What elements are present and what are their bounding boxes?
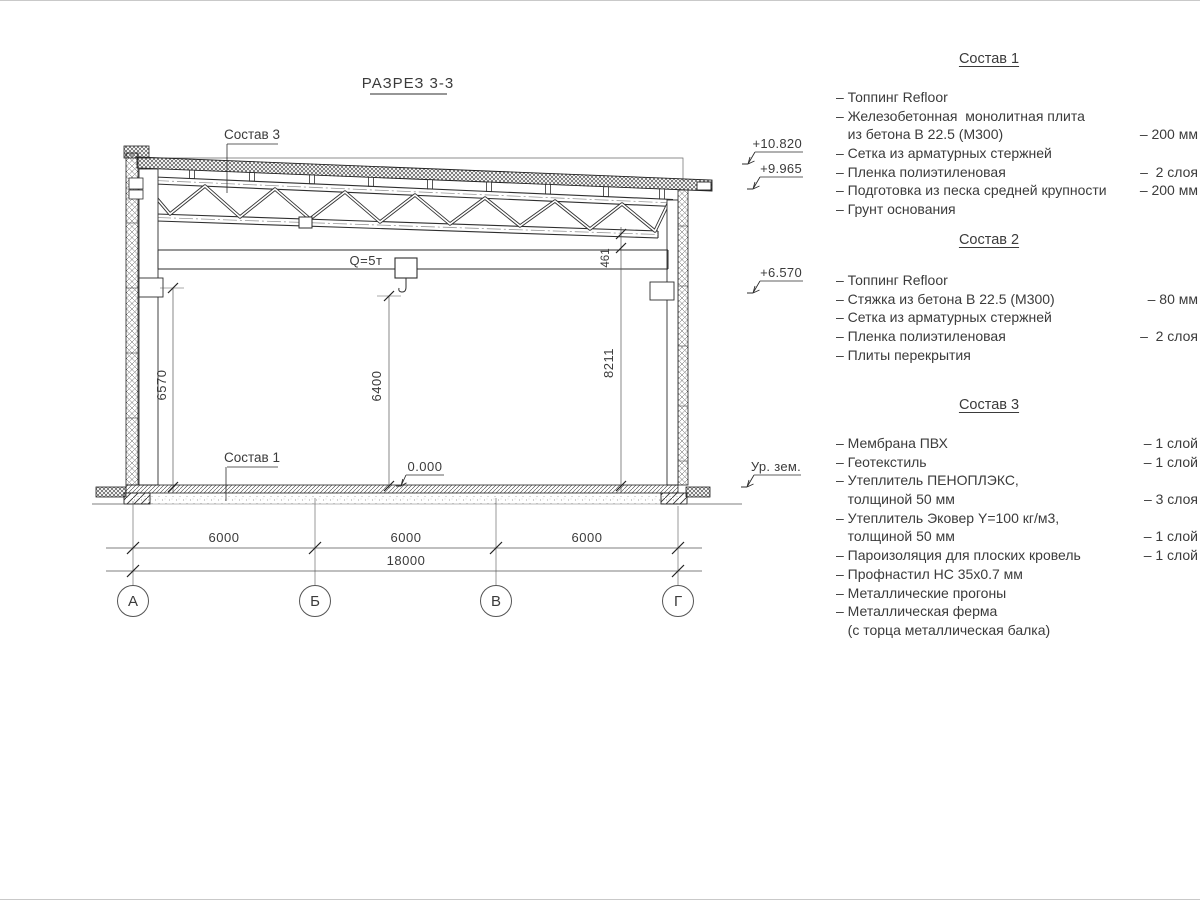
svg-text:+6.570: +6.570 bbox=[760, 265, 802, 280]
elevation-mark-roof-low: +9.965 bbox=[747, 161, 803, 189]
elevation-mark-ground: Ур. зем. bbox=[741, 459, 801, 487]
zero-level-mark: 0.000 bbox=[396, 459, 444, 486]
legend-row: – Утеплитель ПЕНОПЛЭКС, bbox=[836, 471, 1198, 490]
dim-span-cd: 6000 bbox=[572, 530, 603, 545]
svg-text:8211: 8211 bbox=[601, 348, 616, 378]
legend-row: – Мембрана ПВХ– 1 слой bbox=[836, 434, 1198, 453]
foundation-left bbox=[124, 493, 150, 504]
legend-section-3: Состав 3 – Мембрана ПВХ– 1 слой – Геотек… bbox=[836, 397, 1198, 640]
plinth-right bbox=[686, 487, 710, 497]
legend-title-2: Состав 2 bbox=[808, 232, 1170, 250]
svg-text:+9.965: +9.965 bbox=[760, 161, 802, 176]
legend-row: – Пленка полиэтиленовая– 2 слоя bbox=[836, 163, 1198, 182]
legend-row: – Стяжка из бетона В 22.5 (М300)– 80 мм bbox=[836, 290, 1198, 309]
svg-text:Состав 1: Состав 1 bbox=[224, 450, 280, 465]
legend-row: – Грунт основания bbox=[836, 200, 1198, 219]
right-wall bbox=[650, 190, 688, 485]
legend-title-1: Состав 1 bbox=[808, 51, 1170, 69]
title-text: РАЗРЕЗ 3-3 bbox=[362, 75, 455, 92]
crane-capacity-label: Q=5т bbox=[350, 253, 383, 268]
bottom-dimensions: 6000 6000 6000 18000 bbox=[106, 498, 702, 585]
roof-assembly bbox=[137, 157, 712, 191]
legend-row: толщиной 50 мм– 1 слой bbox=[836, 527, 1198, 546]
floor-assembly bbox=[92, 485, 742, 504]
legend-title-3: Состав 3 bbox=[808, 397, 1170, 415]
roof-edge-cap bbox=[697, 182, 711, 190]
axis-bubble-c: В bbox=[491, 593, 501, 610]
elevation-mark-crane-level: +6.570 bbox=[747, 265, 803, 293]
drawing-sheet: РАЗРЕЗ 3-3 bbox=[0, 0, 1200, 900]
sand-layer bbox=[133, 493, 678, 504]
axis-bubble-d: Г bbox=[674, 593, 682, 610]
legend-row: – Утеплитель Эковер Y=100 кг/м3, bbox=[836, 509, 1198, 528]
svg-text:6400: 6400 bbox=[369, 371, 384, 402]
svg-text:Состав 3: Состав 3 bbox=[224, 127, 280, 142]
axis-bubble-a: А bbox=[128, 593, 138, 610]
roof-callout: Состав 3 bbox=[224, 127, 280, 193]
crane-corbel-right bbox=[650, 282, 674, 300]
crane-trolley bbox=[395, 258, 417, 278]
drawing-title: РАЗРЕЗ 3-3 bbox=[362, 75, 455, 94]
left-column bbox=[139, 169, 158, 485]
axis-bubbles: А Б В Г bbox=[118, 586, 694, 617]
legend-row: – Пароизоляция для плоских кровель– 1 сл… bbox=[836, 546, 1198, 565]
legend-row: – Металлические прогоны bbox=[836, 584, 1198, 603]
left-wall bbox=[124, 146, 163, 485]
legend-row: – Плиты перекрытия bbox=[836, 346, 1198, 365]
legend-row: – Пленка полиэтиленовая– 2 слоя bbox=[836, 327, 1198, 346]
legend-row: – Профнастил НС 35х0.7 мм bbox=[836, 565, 1198, 584]
dim-span-bc: 6000 bbox=[391, 530, 422, 545]
legend-row: – Подготовка из песка средней крупности–… bbox=[836, 181, 1198, 200]
svg-text:Ур. зем.: Ур. зем. bbox=[751, 459, 801, 474]
dim-left-height: 6570 bbox=[154, 283, 184, 493]
wall-cap bbox=[124, 146, 149, 158]
dim-right-height: 461 8211 bbox=[600, 227, 626, 493]
dim-total: 18000 bbox=[387, 553, 426, 568]
svg-text:+10.820: +10.820 bbox=[753, 136, 802, 151]
right-column bbox=[667, 200, 678, 485]
elevation-mark-roof-high: +10.820 bbox=[742, 136, 803, 164]
legend-row: – Сетка из арматурных стержней bbox=[836, 144, 1198, 163]
legend-row: – Топпинг Refloor bbox=[836, 271, 1198, 290]
axis-bubble-b: Б bbox=[310, 593, 320, 610]
legend-row: (с торца металлическая балка) bbox=[836, 621, 1198, 640]
plinth-left bbox=[96, 487, 126, 497]
legend-row: – Геотекстиль– 1 слой bbox=[836, 453, 1198, 472]
chord-splice bbox=[299, 217, 312, 228]
crane-corbel-left bbox=[139, 278, 163, 297]
dim-truss-to-crane: 461 bbox=[600, 248, 612, 267]
dim-span-ab: 6000 bbox=[209, 530, 240, 545]
svg-text:6570: 6570 bbox=[154, 370, 169, 401]
foundation-right bbox=[661, 493, 687, 504]
crane-bridge bbox=[158, 250, 668, 292]
floor-slab bbox=[126, 485, 678, 493]
legend-row: – Топпинг Refloor bbox=[836, 88, 1198, 107]
legend-row: толщиной 50 мм– 3 слоя bbox=[836, 490, 1198, 509]
legend-row: – Сетка из арматурных стержней bbox=[836, 308, 1198, 327]
legend-row: – Железобетонная монолитная плита bbox=[836, 107, 1198, 126]
legend-section-2: Состав 2 – Топпинг Refloor – Стяжка из б… bbox=[836, 232, 1198, 364]
legend-row: – Металлическая ферма bbox=[836, 602, 1198, 621]
legend-row: из бетона В 22.5 (М300)– 200 мм bbox=[836, 125, 1198, 144]
dim-mid-height: 6400 bbox=[369, 291, 401, 491]
crane-hook bbox=[399, 278, 406, 292]
svg-text:0.000: 0.000 bbox=[407, 459, 442, 474]
legend-section-1: Состав 1 – Топпинг Refloor – Железобетон… bbox=[836, 51, 1198, 219]
